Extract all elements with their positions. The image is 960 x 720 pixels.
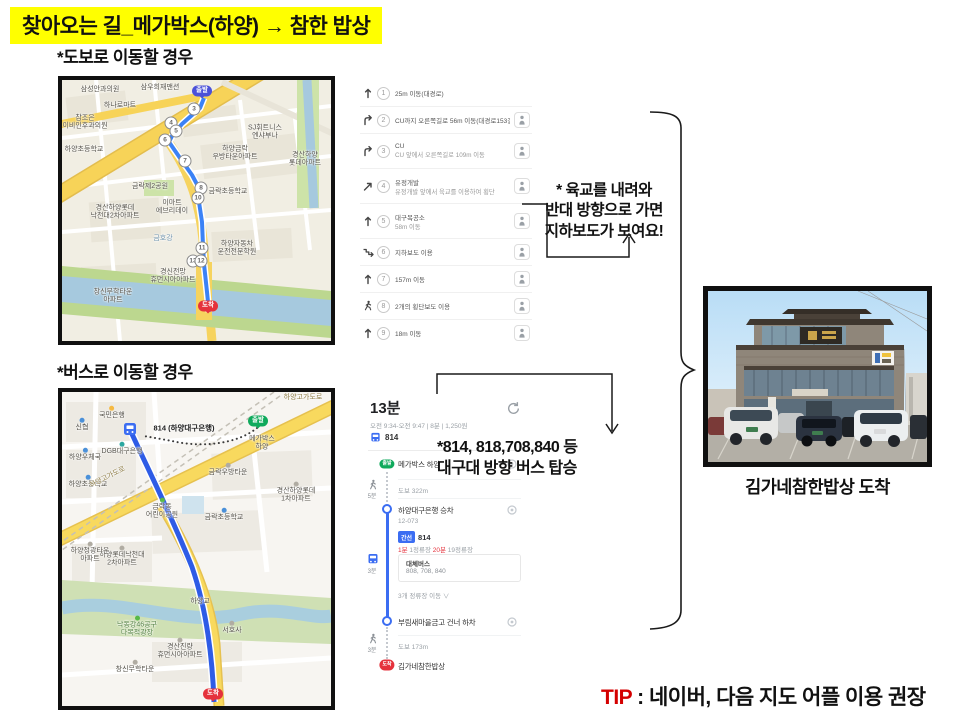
restaurant-photo: [703, 286, 932, 467]
poi-icon: [87, 542, 92, 547]
turn-right-icon: [362, 114, 377, 126]
step-number: 4: [377, 180, 390, 193]
roadview-button[interactable]: [514, 244, 530, 260]
arrival-1-time: 1분: [398, 547, 408, 554]
map-label: 낙동강46공구다목적광장: [117, 616, 157, 639]
stops-toggle[interactable]: 3개 정류장 이동 ∨: [398, 590, 449, 600]
map-label: 금락동어린이공원: [146, 498, 178, 521]
bus-section-label: *버스로 이동할 경우: [57, 358, 193, 383]
roadview-button[interactable]: [514, 325, 530, 341]
route-step-marker: 7: [179, 155, 192, 168]
walk-step-row: 3CUCU 앞에서 오른쪽길로 109m 이동: [360, 134, 532, 169]
route-step-marker: 11: [196, 242, 209, 255]
step-subtext: 유정개발 앞에서 육교를 이용하여 횡단: [395, 187, 510, 196]
bus-icon: [370, 432, 381, 443]
page-title: 찾아오는 길_메가박스(하양) → 참한 밥상: [10, 7, 382, 44]
step-text: CU: [395, 143, 510, 150]
diagonal-right-icon: [362, 180, 377, 192]
overpass-note: * 육교를 내려와반대 방향으로 가면지하보도가 보여요!: [536, 181, 672, 242]
divider: [398, 498, 521, 499]
bus-route-map: 국민은행신협하양우체국하양초등학교DGB대구은행814 (하양대구은행)메가박스…: [58, 388, 335, 710]
step-text: CU까지 오른쪽길로 56m 이동(대경로153길): [395, 115, 510, 125]
map-label: 경산진량휴먼시아아파트: [157, 638, 202, 661]
walker-icon: [367, 479, 379, 491]
walk-step-row: 5대구목공소58m 이동: [360, 204, 532, 239]
start-stop-name: 메가박스 하양: [398, 459, 440, 470]
map-label: 하나로마트: [104, 102, 136, 110]
poi-icon: [109, 406, 114, 411]
board-stop-dot: [382, 504, 392, 514]
step-number: 8: [377, 300, 390, 313]
bus-leg-line: [386, 509, 389, 621]
map-label: SJ휘트니스엔샤부나: [248, 125, 282, 142]
line-number: 814: [418, 533, 431, 542]
map-label: 하양교: [190, 598, 209, 606]
map1-labels: 삼성안과의원삼우희재맨션하나로마트참조은이비인후과의원하양초등학교SJ휘트니스엔…: [62, 80, 331, 341]
step-number: 1: [377, 87, 390, 100]
start-pin: 출발: [248, 416, 268, 427]
arrival-times: 1분 1정류장 20분 19정류장: [398, 544, 473, 554]
step-subtext: 58m 이동: [395, 222, 510, 231]
line-type-badge: 간선: [398, 531, 415, 543]
map-label: 창신무학타운아파트: [94, 289, 133, 306]
straight-icon: [362, 87, 377, 99]
refresh-icon[interactable]: [506, 401, 521, 416]
bus-directions-panel: 13분 오전 9:34-오전 9:47 | 8분 | 1,250원 814 출발…: [358, 393, 533, 680]
poi-icon: [79, 418, 84, 423]
walk1-time: 5분: [363, 491, 381, 500]
roadview-button[interactable]: [514, 298, 530, 314]
divider: [398, 635, 521, 636]
step-text: 대구목공소: [395, 212, 510, 222]
route-step-marker: 12: [195, 255, 208, 268]
poi-icon: [293, 482, 298, 487]
start-pin: 출발: [192, 86, 212, 97]
overpass-note-line: 반대 방향으로 가면: [536, 201, 672, 221]
roadview-button[interactable]: [514, 143, 530, 159]
map-label: 하양고가도로: [284, 394, 323, 402]
board-stop-number: 12-073: [398, 518, 418, 525]
underpass-icon: [362, 246, 377, 258]
board-stop-name: 하양대구은행 승차: [398, 505, 453, 516]
poi-icon: [85, 475, 90, 480]
walk-leg-line: [386, 472, 388, 502]
bus-line-number: 814: [385, 433, 398, 442]
roadview-button[interactable]: [514, 112, 530, 128]
walk-section-label: *도보로 이동할 경우: [57, 43, 193, 68]
straight-icon: [362, 215, 377, 227]
map-label: 금락초등학교: [209, 188, 248, 196]
poi-icon: [225, 463, 230, 468]
ride-time: 3분: [363, 566, 381, 575]
map-label: 삼성안과의원: [81, 86, 120, 94]
straight-icon: [362, 327, 377, 339]
poi-icon: [132, 660, 137, 665]
map-label: 신협: [76, 418, 89, 432]
walk-step-row: 6지하보도 이용: [360, 239, 532, 266]
walk2-distance: 도보 173m: [398, 641, 428, 651]
destination-pin: 도착: [203, 689, 223, 700]
poi-icon: [120, 442, 125, 447]
alt-bus-title: 대체버스: [406, 558, 430, 568]
trip-meta: 오전 9:34-오전 9:47 | 8분 | 1,250원: [370, 420, 467, 430]
slide: { "title": "찾아오는 길_메가박스(하양) → 참한 밥상", "w…: [0, 0, 960, 720]
walk-leg-line2: [386, 627, 388, 659]
map-label: 814 (하양대구은행): [154, 424, 215, 433]
tip-label: TIP: [601, 686, 632, 709]
walker-icon2: [367, 633, 379, 645]
map-label: 하양금락우방타운아파트: [212, 146, 257, 163]
tip-text: : 네이버, 다음 지도 어플 이용 권장: [632, 686, 926, 709]
turn-right-icon: [362, 145, 377, 157]
map-label: 금호강: [153, 235, 172, 243]
bus-line-row: 814: [370, 432, 398, 443]
crosswalk-icon: [362, 300, 377, 312]
map-label: 경신전망휴먼시아아파트: [150, 269, 195, 286]
map-label: 하양자동차운전전문학원: [218, 241, 257, 258]
map-label: DGB대구은행: [102, 442, 143, 456]
walk-step-row: 7157m 이동: [360, 266, 532, 293]
location-target-icon[interactable]: [506, 504, 518, 516]
map-label: 서호사: [222, 621, 241, 635]
poi-icon: [159, 498, 164, 503]
poi-icon: [229, 621, 234, 626]
map-label: 국민은행: [99, 406, 125, 420]
step-text: 25m 이동(대경로): [395, 88, 510, 98]
alight-stop-name: 부림새마을금고 건너 하차: [398, 617, 475, 628]
dest-marker: 도착: [379, 660, 394, 671]
walk2-time: 3분: [363, 645, 381, 654]
map-label: 금락우방타운: [209, 463, 248, 477]
photo-caption: 김가네참한밥상 도착: [703, 474, 932, 499]
step-text: 유정개발: [395, 177, 510, 187]
map-label: 하양우체국: [69, 448, 101, 462]
walking-directions-list: 125m 이동(대경로)2CU까지 오른쪽길로 56m 이동(대경로153길)3…: [360, 80, 532, 346]
step-number: 3: [377, 145, 390, 158]
overpass-note-line: 지하보도가 보여요!: [536, 222, 672, 242]
walk1-distance: 도보 322m: [398, 485, 428, 495]
poi-icon: [135, 616, 140, 621]
poi-icon: [82, 448, 87, 453]
walk-step-row: 918m 이동: [360, 320, 532, 346]
bus-note-arrowhead: [606, 424, 618, 433]
alt-bus-list: 808, 708, 840: [406, 568, 446, 575]
location-target-icon[interactable]: [506, 616, 518, 628]
bus-note-line1: *814, 818,708,840 등: [437, 438, 577, 459]
walk-step-row: 125m 이동(대경로): [360, 80, 532, 107]
step-text: 지하보도 이용: [395, 247, 510, 257]
alight-stop-dot: [382, 616, 392, 626]
route-step-marker: 5: [170, 125, 183, 138]
step-number: 2: [377, 114, 390, 127]
map-label: 금락제2공원: [132, 183, 168, 191]
walking-route-map: 삼성안과의원삼우희재맨션하나로마트참조은이비인후과의원하양초등학교SJ휘트니스엔…: [58, 76, 335, 345]
destination-pin: 도착: [198, 301, 218, 312]
destination-name: 김가네참한밥상: [398, 661, 445, 672]
map-label: 참조은이비인후과의원: [62, 115, 107, 132]
step-text: 2개의 횡단보도 이용: [395, 301, 510, 311]
start-marker: 출발: [379, 460, 394, 469]
roadview-button[interactable]: [514, 271, 530, 287]
route-step-marker: 6: [159, 134, 172, 147]
arrival-2-stops: 19정류장: [446, 547, 473, 554]
poi-icon: [178, 638, 183, 643]
map-label: 삼우희재맨션: [141, 84, 180, 92]
step-subtext: CU 앞에서 오른쪽길로 109m 이동: [395, 150, 510, 159]
walk-step-row: 2CU까지 오른쪽길로 56m 이동(대경로153길): [360, 107, 532, 134]
map-label: 하양청광타운아파트: [71, 542, 110, 565]
arrival-1-stops: 1정류장: [408, 547, 433, 554]
step-text: 157m 이동: [395, 274, 510, 284]
route-step-marker: 10: [192, 192, 205, 205]
step-text: 18m 이동: [395, 328, 510, 338]
arrival-2-time: 20분: [433, 547, 446, 554]
bus-leg-icon: [367, 553, 379, 565]
step-number: 6: [377, 246, 390, 259]
poi-icon: [120, 546, 125, 551]
map2-labels: 국민은행신협하양우체국하양초등학교DGB대구은행814 (하양대구은행)메가박스…: [62, 392, 331, 706]
trip-duration: 13분: [370, 397, 401, 418]
straight-icon: [362, 273, 377, 285]
walk-step-row: 4유정개발유정개발 앞에서 육교를 이용하여 횡단: [360, 169, 532, 204]
overpass-note-line: * 육교를 내려와: [536, 181, 672, 201]
route-step-marker: 3: [188, 103, 201, 116]
bus-boarding-note: *814, 818,708,840 등 대구대 방향 버스 탑승: [437, 438, 577, 480]
map-label: 금락초등학교: [205, 508, 244, 522]
roadview-button[interactable]: [514, 213, 530, 229]
map-label: 경산하양롯데아파트: [289, 152, 321, 169]
alternative-bus-box: 대체버스 808, 708, 840: [398, 554, 521, 582]
map-label: 경산하양롯데낙천대2차아파트: [91, 205, 140, 222]
tip-line: TIP : 네이버, 다음 지도 어플 이용 권장: [601, 681, 926, 711]
map-label: 경산하양롯데1차아파트: [277, 482, 316, 505]
roadview-button[interactable]: [514, 178, 530, 194]
map-label: 창신무학타운: [116, 660, 155, 674]
walk-step-row: 82개의 횡단보도 이용: [360, 293, 532, 320]
map-label: 하양초등학교: [65, 146, 104, 154]
step-number: 5: [377, 215, 390, 228]
bus-note-line2: 대구대 방향 버스 탑승: [437, 459, 577, 480]
step-number: 7: [377, 273, 390, 286]
map-label: 메가박스하양: [249, 436, 275, 453]
map-label: 이마트에브리데이: [156, 200, 188, 217]
step-number: 9: [377, 327, 390, 340]
line-badge-row: 간선 814: [398, 531, 431, 543]
poi-icon: [221, 508, 226, 513]
